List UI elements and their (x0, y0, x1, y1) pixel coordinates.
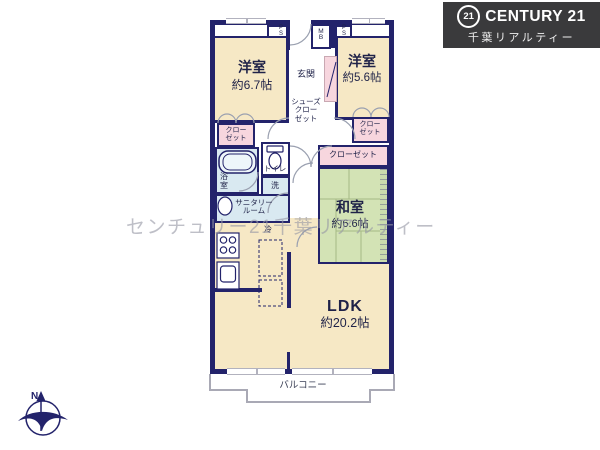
room-size-western-2: 約5.6帖 (343, 72, 382, 85)
wall-entrance-right (331, 20, 335, 48)
wall-kitchen-h (215, 288, 262, 292)
label-shoes-closet: シューズクローゼット (291, 98, 321, 123)
brand-name: CENTURY 21 (485, 8, 586, 26)
room-label-western-2: 洋室 (348, 54, 376, 69)
room-size-western-1: 約6.7帖 (232, 79, 273, 92)
label-toilet: トイレ (264, 165, 287, 173)
watermark: センチュリー21千葉リアルティー (126, 212, 436, 239)
wall-kitchen-v (287, 252, 291, 308)
window (352, 18, 385, 24)
label-ps-1: PS (279, 26, 283, 37)
floorplan-page: 洋室 約6.7帖 洋室 約5.6帖 和室 約6.6帖 LDK 約20.2帖 玄関… (0, 0, 600, 450)
genkan-step (324, 56, 337, 102)
label-genkan: 玄関 (297, 70, 315, 80)
label-closet-left: クローゼット (226, 127, 247, 142)
room-size-ldk: 約20.2帖 (320, 317, 369, 331)
pipe-space-1 (267, 25, 288, 38)
century21-logo: 21 CENTURY 21 千葉リアルティー (443, 2, 600, 48)
entrance-opening (290, 18, 311, 27)
room-label-ldk: LDK (327, 298, 363, 316)
window (292, 368, 372, 375)
room-label-western-1: 洋室 (238, 60, 266, 75)
century21-badge-icon: 21 (457, 5, 480, 28)
label-closet-wide: クローゼット (329, 151, 377, 160)
window (227, 368, 285, 375)
wall-window-mullion (287, 352, 290, 369)
label-laundry: 洗 (271, 182, 279, 191)
compass-north-label: N (31, 391, 38, 402)
label-balcony: バルコニー (279, 381, 326, 391)
window (226, 18, 266, 24)
label-mb: MB (318, 29, 323, 41)
label-bath: 浴室 (220, 173, 228, 191)
label-closet-right: クローゼット (360, 121, 381, 136)
compass-icon: N (10, 383, 74, 447)
label-ps-2: PS (342, 26, 346, 37)
brand-company: 千葉リアルティー (468, 29, 575, 45)
